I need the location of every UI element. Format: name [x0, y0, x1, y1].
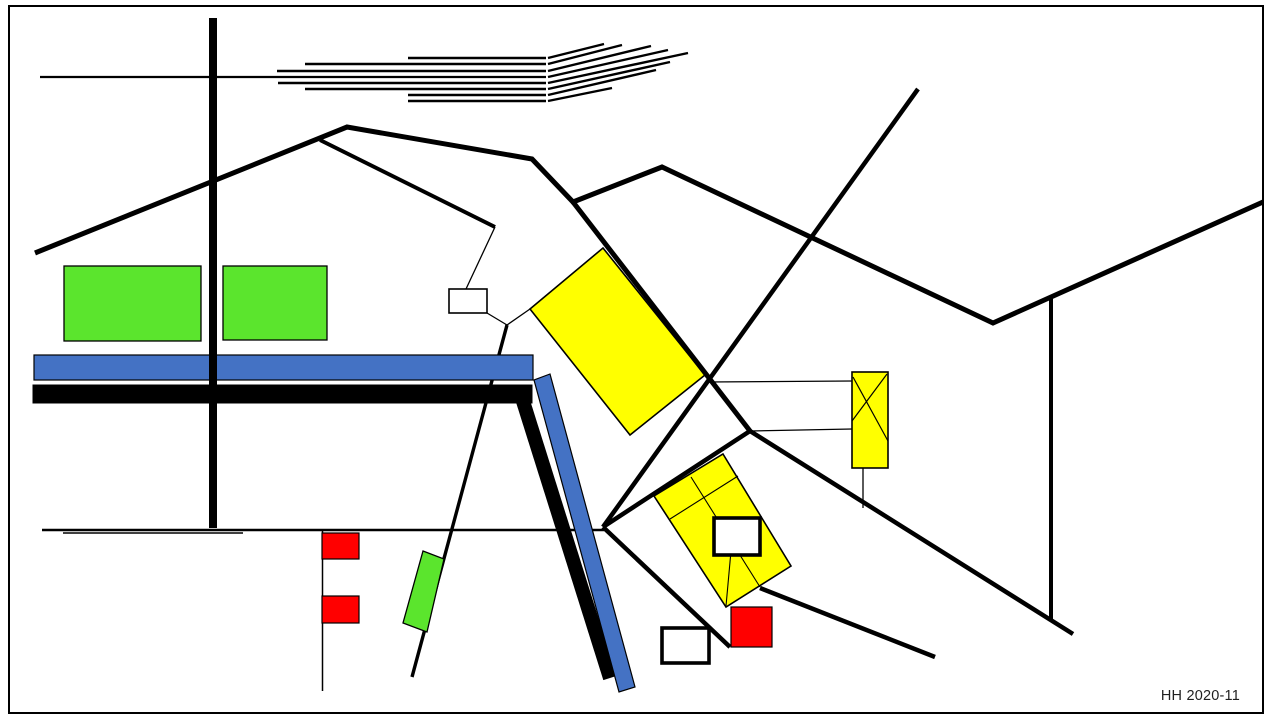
green-building-1	[64, 266, 201, 341]
connector-line-upper	[707, 381, 852, 382]
white-box-thick-1	[714, 518, 760, 555]
branch-line	[320, 140, 495, 227]
ridge-boundary-line	[35, 127, 1263, 323]
link-line-to-yellow	[507, 309, 530, 325]
white-box-thick-2	[662, 628, 709, 663]
red-marker-3	[731, 607, 772, 647]
blue-bar-horizontal	[34, 355, 533, 380]
link-line-from-box	[487, 313, 507, 325]
green-building-2	[223, 266, 327, 340]
railway-yard-hatch	[40, 44, 688, 101]
track-fan-line	[548, 88, 612, 101]
map-drawing	[0, 0, 1280, 720]
drawing-page: HH 2020-11	[0, 0, 1280, 720]
green-strip-rotated	[403, 551, 444, 632]
red-marker-1	[322, 533, 359, 559]
link-line-to-box	[466, 227, 495, 289]
white-box-small	[449, 289, 487, 313]
connector-line-lower	[750, 429, 852, 431]
black-bar-horizontal	[33, 385, 532, 403]
red-marker-2	[322, 596, 359, 623]
drawing-caption: HH 2020-11	[1161, 688, 1240, 704]
yellow-tower	[852, 372, 888, 468]
south-short-road	[760, 588, 935, 657]
